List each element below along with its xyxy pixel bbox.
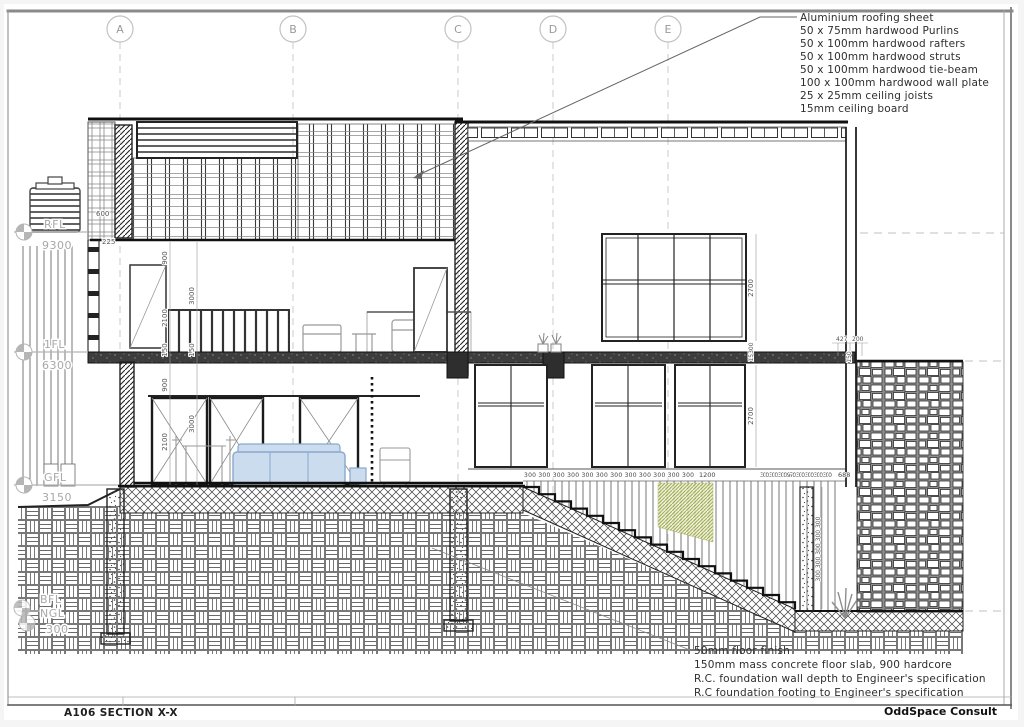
cut-wall-centre	[455, 122, 468, 375]
roof-note-5: 100 x 100mm hardwood wall plate	[800, 77, 989, 89]
parapet-lattice	[88, 122, 115, 240]
roof-note-7: 15mm ceiling board	[800, 103, 909, 115]
section-drawing: A B C D E	[0, 0, 1024, 727]
foundation-note-3: R.C foundation footing to Engineer's spe…	[694, 687, 964, 699]
dim-treads-left: 300 300 300 300 300 300 300 300 300 300 …	[524, 472, 694, 479]
roof-note-4: 50 x 100mm hardwood tie-beam	[800, 64, 978, 76]
dim-risers: 300 300 300 300 300	[815, 516, 822, 581]
dim-150-b: 150	[188, 343, 196, 356]
grid-label-c: C	[454, 23, 462, 36]
level-label-rfl: RFL	[44, 218, 66, 231]
dim-right-wall-top: 150	[846, 351, 853, 363]
dim-150-a: 150	[161, 343, 169, 356]
datum-gfl	[16, 477, 32, 493]
dim-688: 688	[838, 471, 850, 479]
clerestory-window	[137, 122, 297, 158]
dim-900-upper: 900	[161, 251, 169, 264]
foundation-note-1: 150mm mass concrete floor slab, 900 hard…	[694, 659, 952, 671]
roof-framing-grid	[133, 158, 298, 240]
grid-label-a: A	[116, 23, 124, 36]
level-label-ngl: NGL	[40, 607, 65, 620]
dim-parapet: 225	[102, 238, 115, 246]
roof-note-2: 50 x 100mm hardwood rafters	[800, 38, 965, 50]
dim-2100-upper: 2100	[161, 309, 169, 327]
stool-blue	[350, 468, 366, 484]
roof-note-3: 50 x 100mm hardwood struts	[800, 51, 961, 63]
sheet-title: A106 SECTION X-X	[64, 707, 178, 719]
ground-windows	[475, 365, 745, 467]
datum-bfl	[14, 600, 30, 616]
dim-treads-right: 300 300 300 970 300 300 300 300	[760, 472, 832, 479]
level-value-gfl: 3150	[42, 491, 72, 504]
grid-label-d: D	[549, 23, 557, 36]
dim-427: 427	[836, 336, 848, 343]
level-label-1fl: 1FL	[44, 338, 65, 351]
stone-boundary-wall	[845, 361, 963, 612]
drawing-sheet: A B C D E	[0, 0, 1024, 727]
foundation-note-0: 50mm floor finish	[694, 645, 790, 657]
foundation-note-2: R.C. foundation wall depth to Engineer's…	[694, 673, 986, 685]
dim-roof-edge: 600	[96, 210, 109, 218]
ground-left-wall	[120, 362, 134, 487]
dim-2100-lower: 2100	[161, 433, 169, 451]
dim-1200: 1200	[699, 471, 716, 479]
datum-1fl	[16, 344, 32, 360]
roof-note-1: 50 x 75mm hardwood Purlins	[800, 25, 959, 37]
roof-framing-grid	[298, 124, 455, 240]
dim-lower-window-height: 2700	[747, 407, 755, 425]
level-label-bfl: BFL	[40, 593, 62, 606]
level-value-1fl: 6300	[42, 359, 72, 372]
stair-railing	[168, 310, 290, 353]
ceiling-joists	[468, 127, 846, 141]
dim-3000-lower: 3000	[188, 415, 196, 433]
dim-200: 200	[852, 336, 864, 343]
level-label-gfl: GFL	[44, 471, 67, 484]
grid-label-e: E	[665, 23, 672, 36]
datum-rfl	[16, 224, 32, 240]
dim-900-lower: 900	[161, 378, 169, 391]
consultant-name: OddSpace Consult	[884, 705, 997, 718]
foundation-footing-left	[101, 633, 130, 644]
dim-upper-window-height: 2700	[747, 279, 755, 297]
dim-3000-upper: 3000	[188, 287, 196, 305]
level-value-rfl: 9300	[42, 239, 72, 252]
stair-retaining-wall	[800, 487, 813, 611]
cut-wall-left	[115, 125, 132, 238]
slab-beam	[447, 352, 468, 378]
level-value-ngl: 300	[46, 623, 69, 636]
foundation-wall-left	[107, 489, 124, 634]
grid-label-b: B	[289, 23, 297, 36]
stair-landing-slab	[795, 611, 963, 631]
foundation-footing-mid	[444, 620, 473, 631]
foundation-wall-mid	[450, 489, 467, 621]
roof-note-6: 25 x 25mm ceiling joists	[800, 90, 933, 102]
dim-overall-height: 15300	[748, 342, 755, 361]
roof-note-0: Aluminium roofing sheet	[800, 12, 934, 24]
datum-ngl	[19, 615, 35, 631]
tank-cap	[48, 177, 62, 184]
